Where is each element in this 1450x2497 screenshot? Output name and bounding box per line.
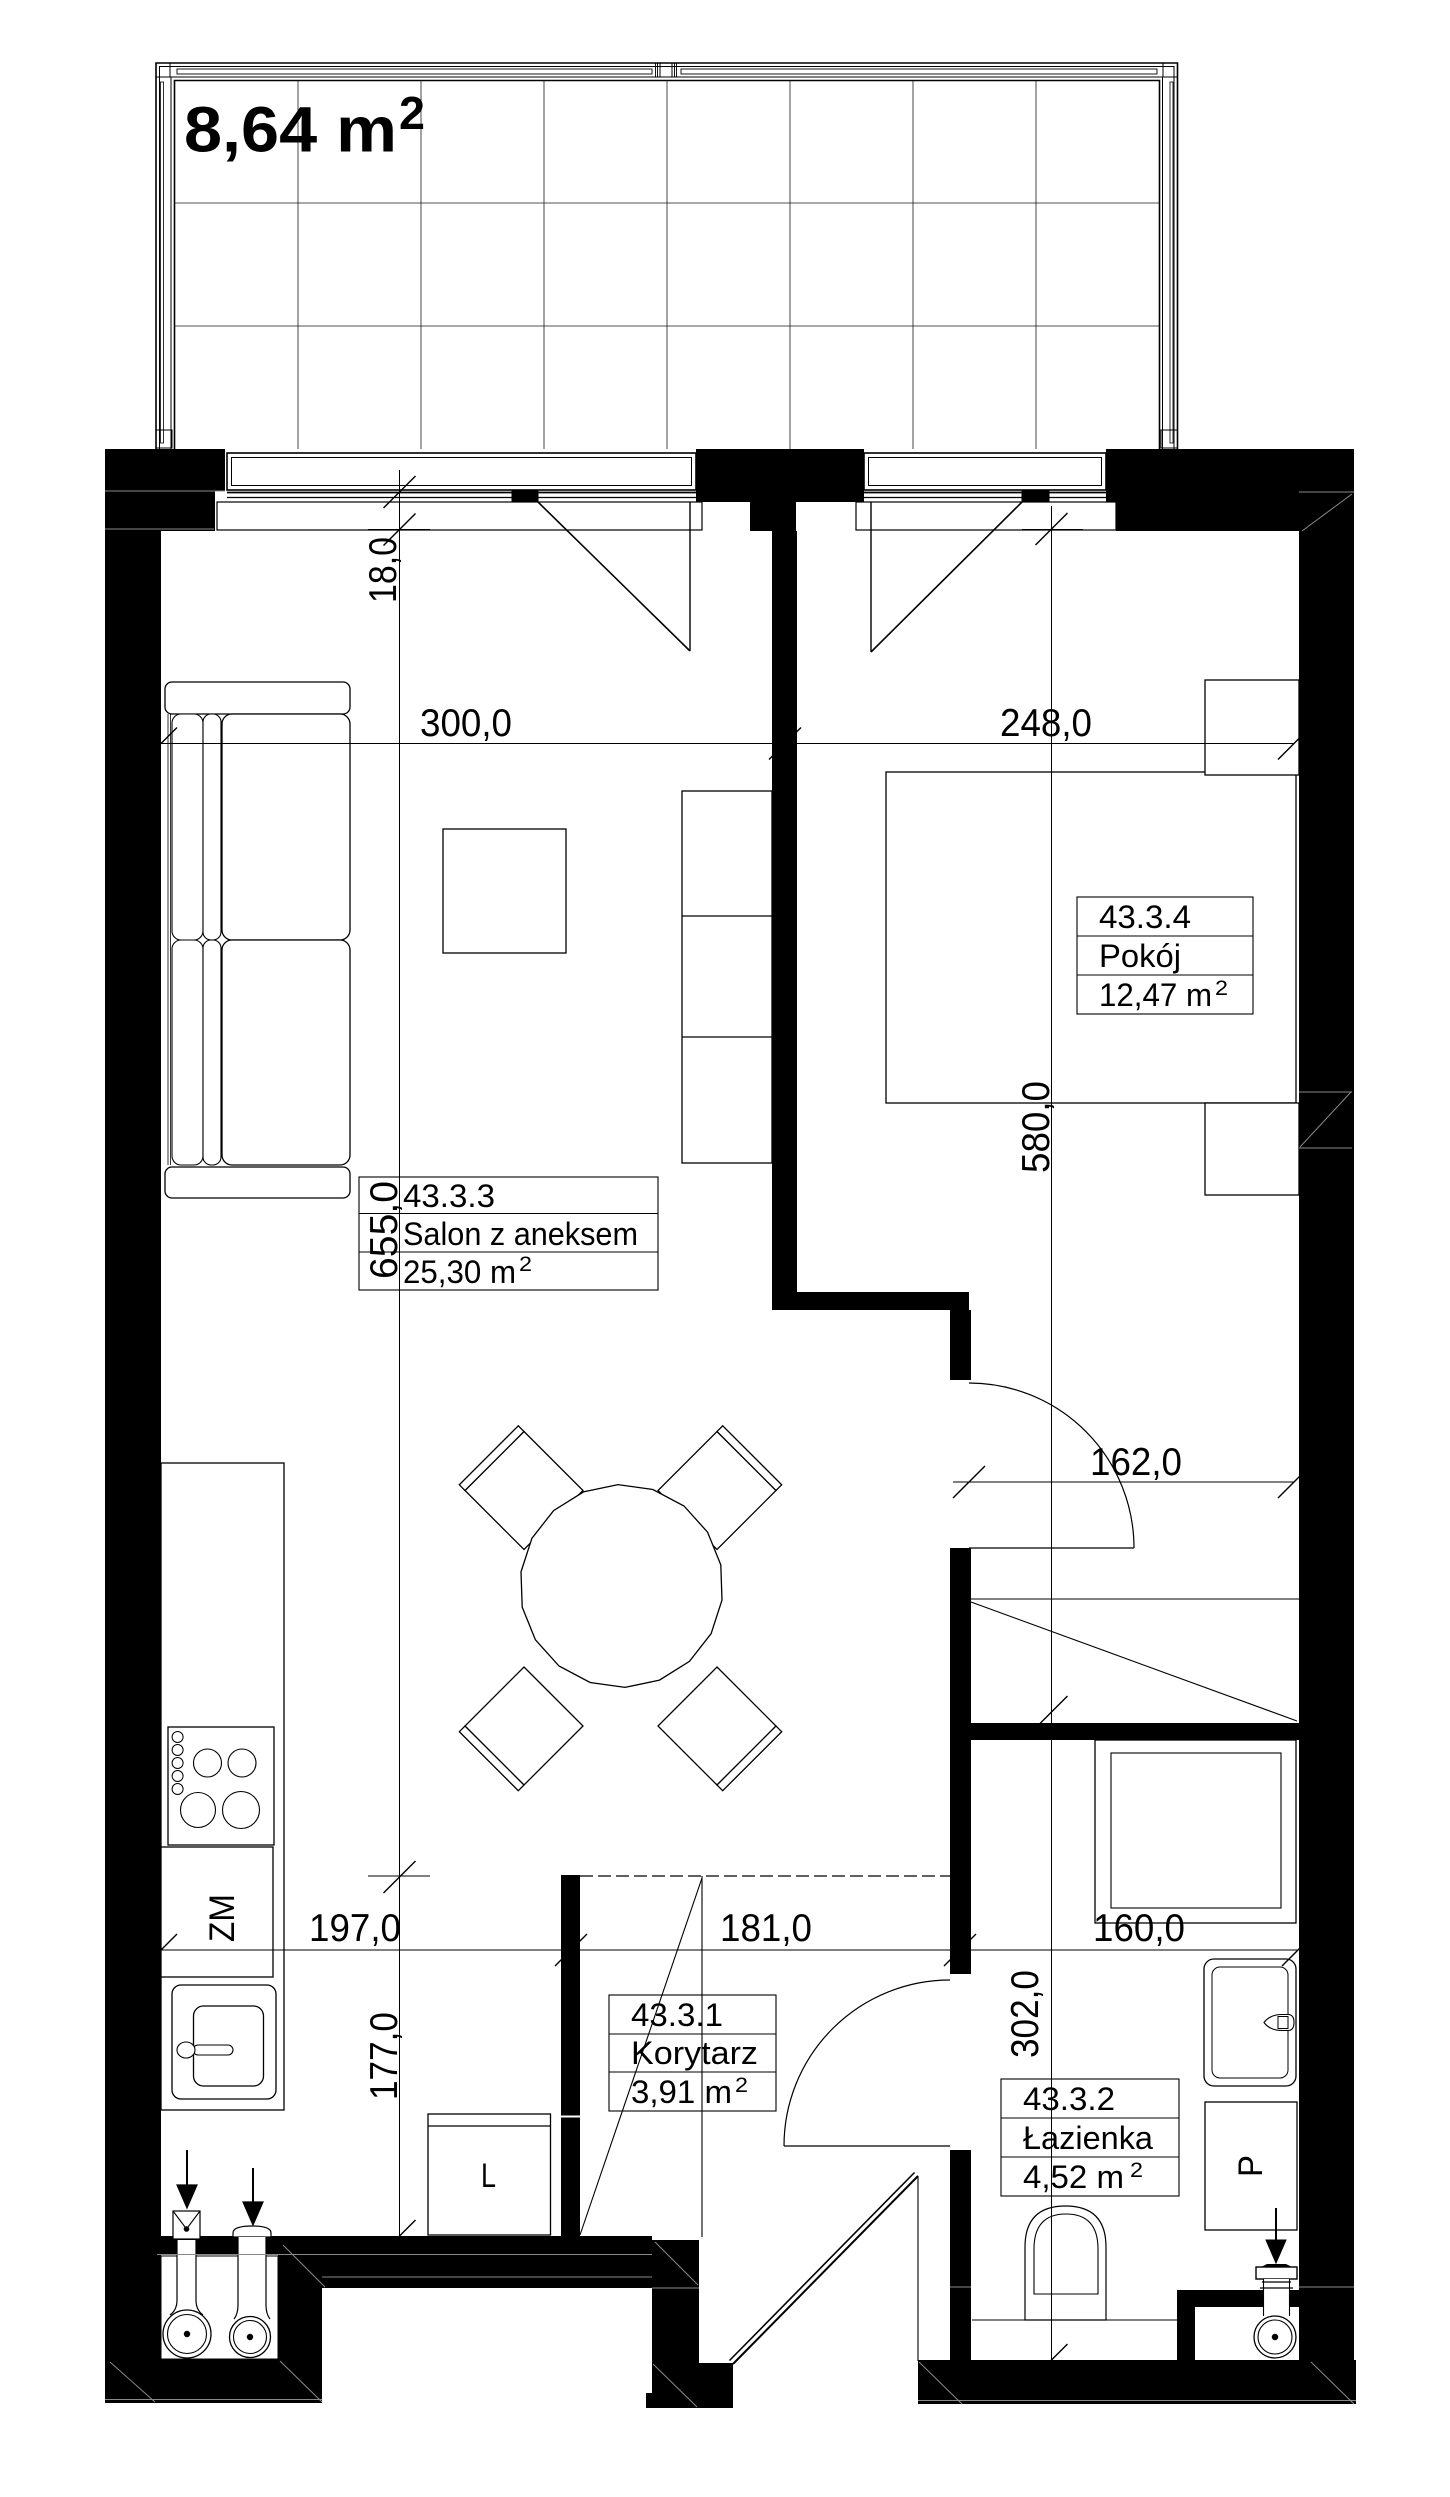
svg-text:162,0: 162,0 [1090, 1441, 1182, 1484]
svg-text:2: 2 [1215, 977, 1228, 1000]
svg-text:ZM: ZM [203, 1894, 242, 1942]
svg-text:43.3.4: 43.3.4 [1099, 899, 1191, 935]
svg-text:2: 2 [519, 1253, 532, 1276]
svg-text:L: L [481, 2157, 496, 2195]
svg-text:43.3.3: 43.3.3 [403, 1178, 495, 1214]
svg-text:2: 2 [1130, 2159, 1143, 2182]
svg-text:160,0: 160,0 [1093, 1907, 1185, 1950]
svg-text:Korytarz: Korytarz [631, 2035, 758, 2071]
svg-text:P: P [1232, 2155, 1270, 2177]
svg-text:655,0: 655,0 [363, 1181, 406, 1279]
svg-text:177,0: 177,0 [363, 2012, 406, 2100]
svg-text:2: 2 [735, 2074, 748, 2097]
svg-text:302,0: 302,0 [1004, 1970, 1047, 2058]
svg-text:18,0: 18,0 [362, 537, 405, 603]
svg-text:181,0: 181,0 [720, 1907, 812, 1950]
svg-text:2: 2 [399, 87, 425, 139]
svg-text:3,91 m: 3,91 m [631, 2074, 732, 2110]
svg-text:580,0: 580,0 [1015, 1081, 1058, 1173]
svg-text:8,64 m: 8,64 m [184, 94, 397, 166]
svg-text:Łazienka: Łazienka [1023, 2120, 1154, 2156]
svg-text:43.3.2: 43.3.2 [1023, 2081, 1115, 2117]
svg-text:12,47 m: 12,47 m [1099, 977, 1212, 1013]
svg-text:Salon z aneksem: Salon z aneksem [403, 1216, 638, 1252]
svg-text:43.3.1: 43.3.1 [631, 1997, 723, 2033]
svg-text:248,0: 248,0 [1000, 702, 1092, 745]
svg-text:197,0: 197,0 [309, 1907, 401, 1950]
svg-text:Pokój: Pokój [1099, 938, 1181, 974]
svg-text:300,0: 300,0 [420, 702, 512, 745]
svg-text:25,30 m: 25,30 m [403, 1254, 516, 1290]
svg-text:4,52 m: 4,52 m [1023, 2159, 1124, 2195]
